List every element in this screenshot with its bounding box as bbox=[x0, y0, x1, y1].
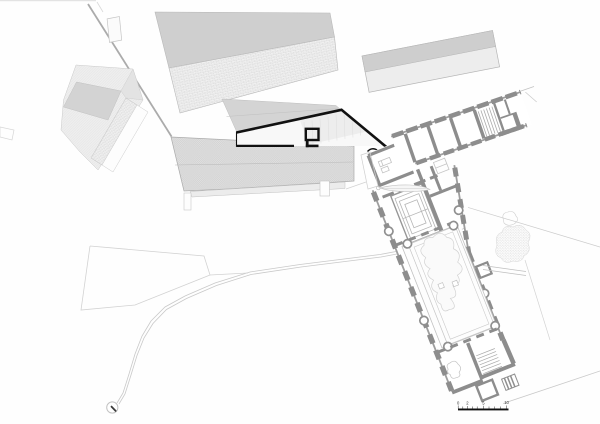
svg-text:10: 10 bbox=[504, 400, 509, 405]
